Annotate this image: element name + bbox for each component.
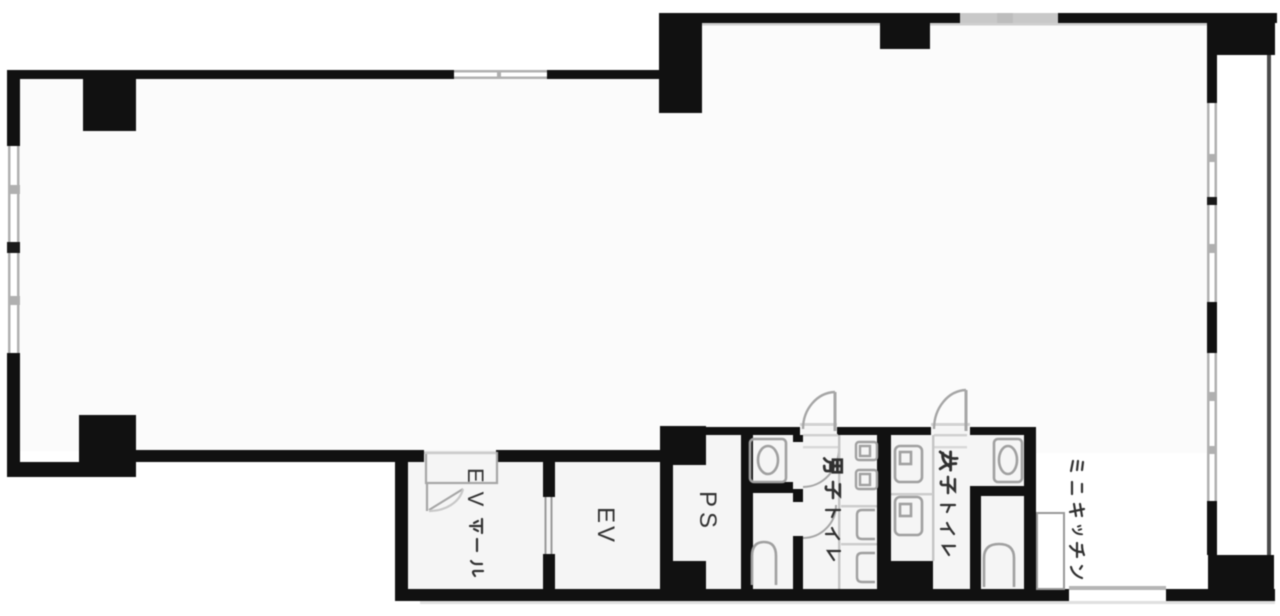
svg-text:EV: EV (592, 507, 619, 545)
svg-text:PS: PS (694, 491, 721, 533)
svg-text:EV: EV (463, 468, 488, 515)
